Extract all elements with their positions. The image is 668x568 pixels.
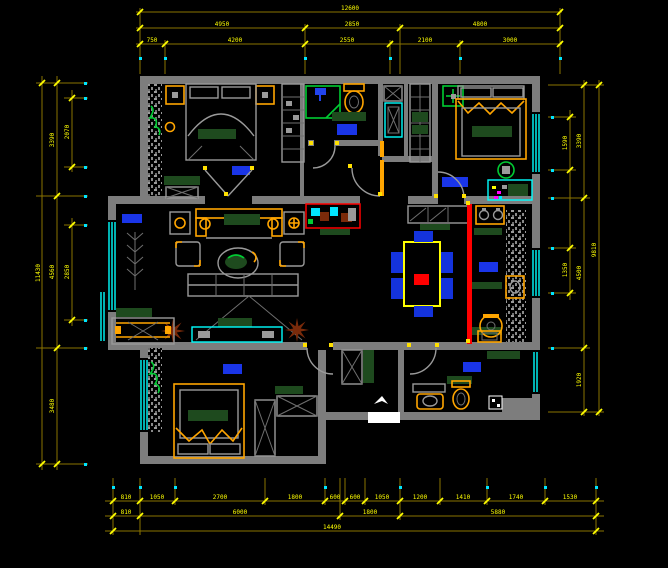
- dim-label: 3390: [49, 132, 56, 147]
- rug: [122, 214, 142, 223]
- dim-label: 4200: [228, 37, 243, 44]
- counter: [472, 282, 502, 289]
- dim-label: 2100: [418, 37, 433, 44]
- counter: [413, 384, 445, 392]
- dim-label: 4950: [215, 21, 230, 28]
- rug: [479, 262, 498, 272]
- room-living: [112, 204, 360, 344]
- label-box: [368, 412, 400, 423]
- dim-label: 1740: [509, 494, 524, 501]
- paper-holder: [489, 396, 502, 409]
- console-table: [306, 204, 360, 235]
- dim-label: 9810: [591, 242, 598, 257]
- dim-label: 1350: [562, 262, 569, 277]
- washing-machine: [342, 350, 374, 384]
- chair: [441, 252, 453, 273]
- dim-label: 2550: [340, 37, 355, 44]
- dim-label: 1530: [563, 494, 578, 501]
- floorplan-canvas[interactable]: 12600 4950 2850 4800 750 4200 2550 2100 …: [0, 0, 668, 568]
- dim-label: 600: [330, 494, 341, 501]
- armchair: [280, 242, 304, 266]
- tv: [218, 318, 252, 327]
- door-swing: [313, 146, 335, 168]
- shower-head-icon: [315, 88, 326, 95]
- stove: [476, 206, 504, 224]
- double-bed: [174, 384, 244, 458]
- dim-label: 810: [121, 509, 132, 516]
- dim-label: 14490: [323, 524, 341, 531]
- sideboard: [408, 206, 468, 230]
- table-runner: [414, 274, 429, 285]
- shelf: [447, 376, 472, 384]
- dim-label: 2070: [64, 124, 71, 139]
- dimension-chain-bottom: 810 1050 2700 1800 600 600 1050 1200 141…: [105, 478, 604, 535]
- shelf: [332, 112, 366, 121]
- door-swing: [410, 348, 436, 374]
- plant-icon: [285, 318, 309, 342]
- dim-label: 1050: [150, 494, 165, 501]
- chair: [414, 231, 433, 242]
- dimension-chain-right: 1590 1350 3390 4500 1920 9810: [548, 80, 604, 416]
- dim-label: 3000: [503, 37, 518, 44]
- dim-label: 2850: [345, 21, 360, 28]
- toilet: [452, 381, 470, 409]
- laundry-closet: [384, 86, 402, 137]
- dim-label: 1800: [363, 509, 378, 516]
- dim-label: 6000: [233, 509, 248, 516]
- dimension-chain-top: 12600 4950 2850 4800 750 4200 2550 2100 …: [136, 5, 563, 74]
- chair: [414, 306, 433, 317]
- floor-lamp-icon: [166, 123, 175, 132]
- dim-label: 12600: [341, 5, 359, 12]
- dim-label: 4500: [576, 265, 583, 280]
- dim-label: 3390: [576, 133, 583, 148]
- rug: [337, 124, 357, 135]
- hall-closet-grid: [410, 84, 430, 162]
- side-table: [170, 212, 190, 234]
- textured-wall: [148, 84, 162, 196]
- dim-label: 4560: [49, 264, 56, 279]
- rug: [232, 166, 250, 175]
- room-bedroom-right: [442, 86, 532, 200]
- room-master-bedroom: [148, 84, 304, 198]
- room-bedroom-bottom: [148, 348, 317, 458]
- dim-label: 750: [147, 37, 158, 44]
- cad-viewport: 12600 4950 2850 4800 750 4200 2550 2100 …: [0, 0, 668, 568]
- dim-label: 1050: [375, 494, 390, 501]
- balcony-cabinet: [112, 308, 174, 344]
- rug: [463, 362, 481, 372]
- bench: [164, 176, 200, 185]
- counter: [474, 228, 502, 235]
- room-kitchen: [472, 206, 526, 342]
- dim-label: 1410: [456, 494, 471, 501]
- dim-label: 600: [350, 494, 361, 501]
- dim-label: 4800: [473, 21, 488, 28]
- branch-decor-icon: [127, 232, 143, 290]
- sliding-door-track: [467, 204, 472, 344]
- armchair: [176, 242, 200, 266]
- vanity-sink: [417, 394, 443, 409]
- dim-label: 1590: [562, 135, 569, 150]
- door-swing: [352, 168, 380, 196]
- dim-label: 5880: [491, 509, 506, 516]
- dim-label: 3480: [49, 398, 56, 413]
- shelf: [487, 351, 520, 359]
- double-bed: [186, 84, 256, 160]
- dimension-chain-left: 11430 3390 4560 3480 2070 2850: [35, 76, 88, 470]
- compass-icon: [374, 396, 388, 404]
- dim-label: 2850: [64, 264, 71, 279]
- dim-label: 1200: [413, 494, 428, 501]
- dim-label: 1920: [576, 372, 583, 387]
- rug: [223, 364, 242, 374]
- dim-label: 1800: [288, 494, 303, 501]
- closet: [255, 386, 317, 456]
- chair: [391, 252, 403, 273]
- double-bed: [456, 86, 526, 159]
- dim-label: 11430: [35, 264, 42, 282]
- chair: [391, 278, 403, 299]
- dim-label: 810: [121, 494, 132, 501]
- toilet: [344, 84, 364, 113]
- chair: [441, 278, 453, 299]
- sofa: [196, 209, 282, 238]
- dim-label: 2700: [213, 494, 228, 501]
